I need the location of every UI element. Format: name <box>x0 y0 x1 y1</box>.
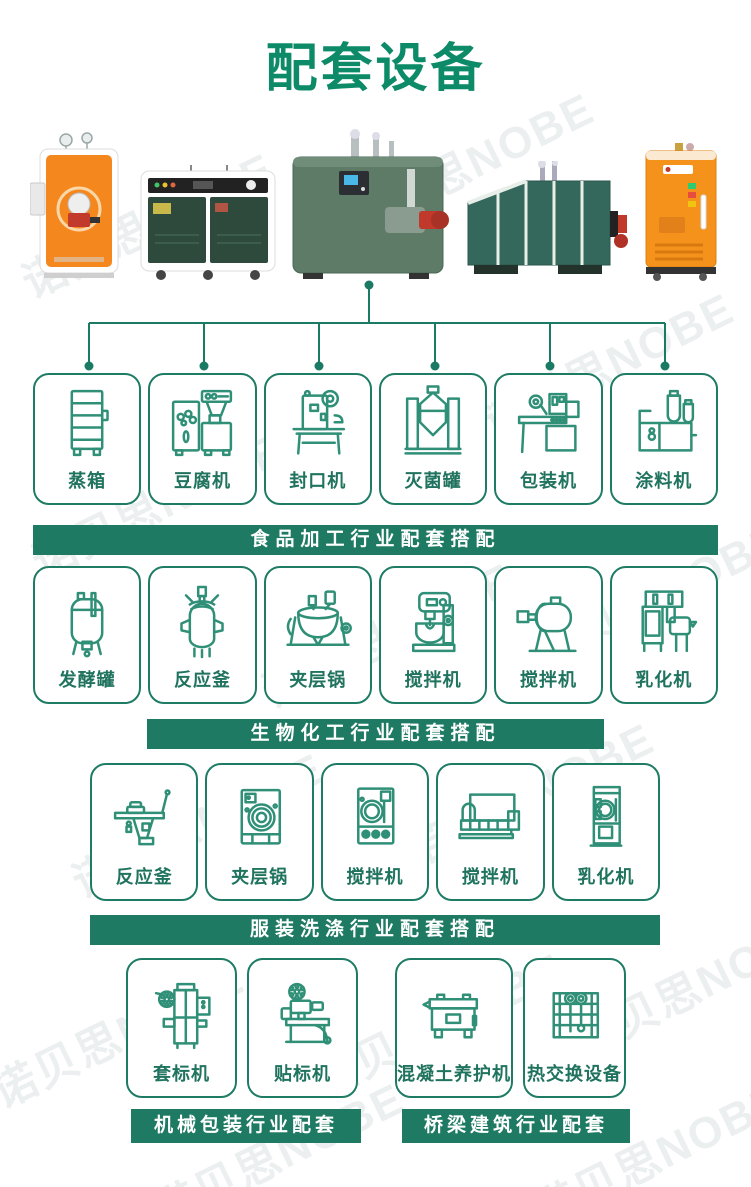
equipment-label: 夹层锅 <box>289 666 346 692</box>
green-cube-boiler <box>289 129 451 286</box>
equipment-card: 发酵罐 <box>33 566 141 704</box>
equipment-label: 涂料机 <box>635 467 692 493</box>
equipment-card: 夹层锅 <box>205 763 313 901</box>
equipment-label: 灭菌罐 <box>405 467 462 493</box>
equipment-card: 反应釜 <box>148 566 256 704</box>
coating-machine-icon <box>626 381 702 465</box>
boiler-products-row <box>30 132 721 286</box>
equipment-card: 热交换设备 <box>523 958 626 1098</box>
biochem-industry-row: 发酵罐反应釜夹层锅搅拌机搅拌机乳化机 <box>33 566 718 704</box>
equipment-card: 乳化机 <box>552 763 660 901</box>
equipment-label: 搅拌机 <box>347 863 404 889</box>
equipment-card: 封口机 <box>264 373 372 505</box>
page-title: 配套设备 <box>0 26 751 101</box>
equipment-label: 豆腐机 <box>174 467 231 493</box>
equipment-label: 蒸箱 <box>68 467 106 493</box>
equipment-label: 搅拌机 <box>462 863 519 889</box>
page: 诺贝思NOBE诺贝思NOBE诺贝思NOBE诺贝思NOBE诺贝思NOBE诺贝思NO… <box>0 0 751 1187</box>
equipment-label: 搅拌机 <box>520 666 577 692</box>
packaging-industry-row: 套标机贴标机 <box>126 958 358 1098</box>
sleeve-labeler-icon <box>144 974 220 1058</box>
equipment-card: 搅拌机 <box>494 566 602 704</box>
washer-front-icon <box>222 777 298 861</box>
equipment-label: 封口机 <box>289 467 346 493</box>
planetary-mixer-icon <box>395 580 471 664</box>
equipment-label: 反应釜 <box>116 863 173 889</box>
equipment-label: 发酵罐 <box>59 666 116 692</box>
laundry-industry-row: 反应釜夹层锅搅拌机搅拌机乳化机 <box>90 763 660 901</box>
vertical-dryer-icon <box>568 777 644 861</box>
heat-exchanger-icon <box>537 974 613 1058</box>
equipment-label: 乳化机 <box>577 863 634 889</box>
reactor-kettle-icon <box>164 580 240 664</box>
sterilizer-tank-icon <box>395 381 471 465</box>
orange-compact-boiler <box>641 143 721 286</box>
equipment-card: 搅拌机 <box>379 566 487 704</box>
banner-bridge-industry: 桥梁建筑行业配套 <box>402 1109 630 1143</box>
bridge-industry-row: 混凝土养护机热交换设备 <box>395 958 626 1098</box>
equipment-card: 贴标机 <box>247 958 358 1098</box>
flatwork-ironer-icon <box>452 777 528 861</box>
equipment-card: 搅拌机 <box>321 763 429 901</box>
equipment-card: 乳化机 <box>610 566 718 704</box>
steam-cabinet-icon <box>49 381 125 465</box>
equipment-card: 包装机 <box>494 373 602 505</box>
food-industry-row: 蒸箱豆腐机封口机灭菌罐包装机涂料机 <box>33 373 718 505</box>
equipment-label: 包装机 <box>520 467 577 493</box>
equipment-card: 搅拌机 <box>436 763 544 901</box>
equipment-card: 夹层锅 <box>264 566 372 704</box>
orange-vertical-boiler <box>30 131 128 286</box>
equipment-card: 豆腐机 <box>148 373 256 505</box>
equipment-card: 混凝土养护机 <box>395 958 513 1098</box>
equipment-card: 涂料机 <box>610 373 718 505</box>
equipment-label: 搅拌机 <box>405 666 462 692</box>
equipment-card: 套标机 <box>126 958 237 1098</box>
equipment-label: 热交换设备 <box>527 1060 622 1086</box>
banner-food-industry: 食品加工行业配套搭配 <box>33 525 718 555</box>
ironing-table-icon <box>106 777 182 861</box>
packing-machine-icon <box>510 381 586 465</box>
equipment-label: 混凝土养护机 <box>397 1060 511 1086</box>
concrete-curer-icon <box>416 974 492 1058</box>
banner-packaging-industry: 机械包装行业配套 <box>131 1109 361 1143</box>
equipment-label: 反应釜 <box>174 666 231 692</box>
dryer-front-icon <box>337 777 413 861</box>
equipment-card: 反应釜 <box>90 763 198 901</box>
teal-horizontal-boiler <box>462 161 630 286</box>
drum-mixer-icon <box>510 580 586 664</box>
equipment-label: 贴标机 <box>274 1060 331 1086</box>
labeling-machine-icon <box>265 974 341 1058</box>
equipment-label: 夹层锅 <box>231 863 288 889</box>
equipment-card: 灭菌罐 <box>379 373 487 505</box>
tofu-machine-icon <box>164 381 240 465</box>
banner-laundry-industry: 服装洗涤行业配套搭配 <box>90 915 660 945</box>
equipment-label: 乳化机 <box>635 666 692 692</box>
equipment-label: 套标机 <box>153 1060 210 1086</box>
green-cabinet-boiler <box>139 163 277 286</box>
fermenter-tank-icon <box>49 580 125 664</box>
banner-biochem-industry: 生物化工行业配套搭配 <box>147 719 604 749</box>
sealing-machine-icon <box>280 381 356 465</box>
jacketed-kettle-icon <box>280 580 356 664</box>
emulsifier-icon <box>626 580 702 664</box>
equipment-card: 蒸箱 <box>33 373 141 505</box>
